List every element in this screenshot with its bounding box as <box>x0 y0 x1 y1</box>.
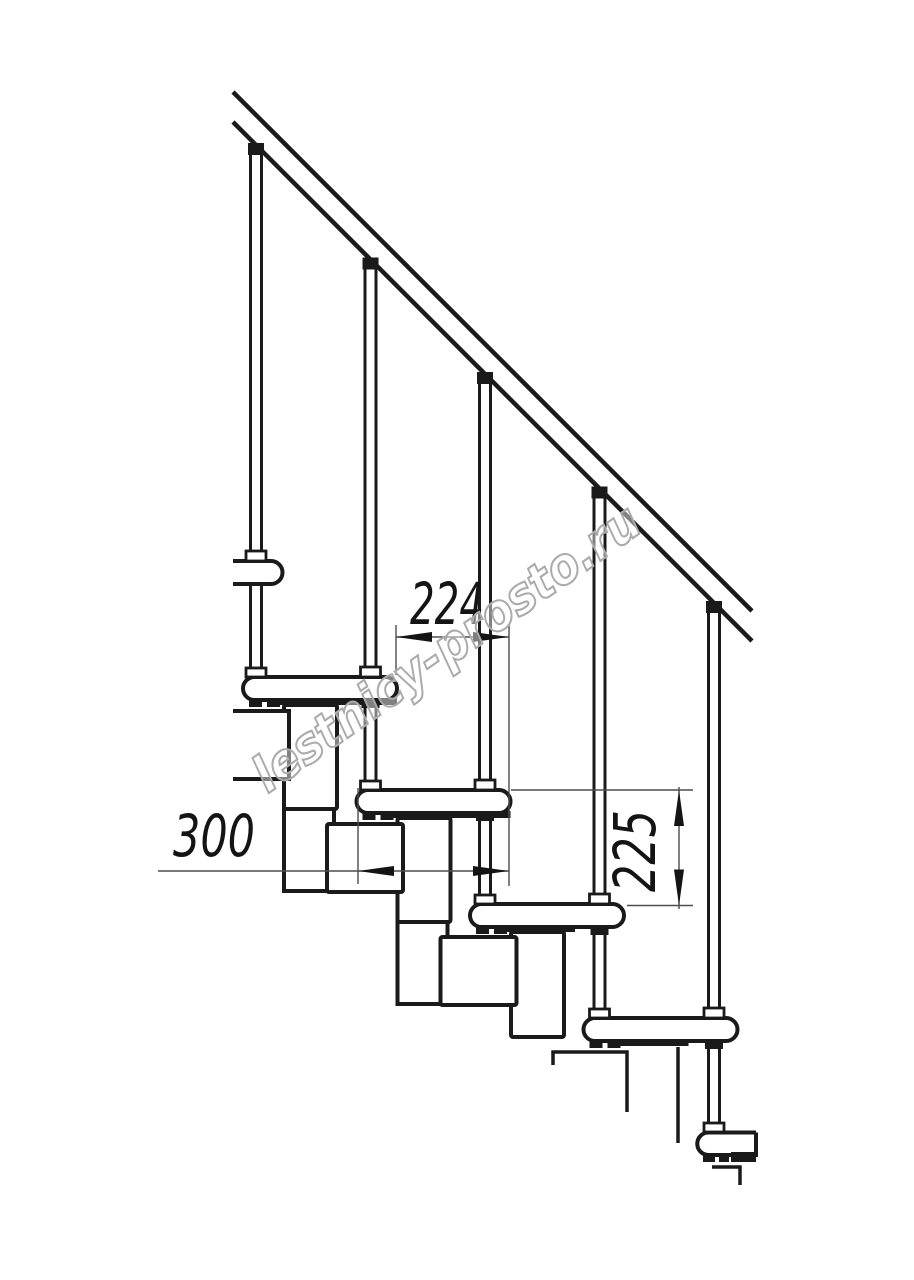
baluster-3-rail-connector <box>477 372 493 384</box>
dim-label-tread-depth: 300 <box>173 802 255 870</box>
tread-5-mount-strip <box>731 1152 756 1162</box>
tread-0-cut <box>233 561 283 584</box>
square-module-3-partial <box>553 1052 627 1112</box>
baluster-1-rail-connector <box>248 143 264 155</box>
tread-3-mount-strip <box>505 925 575 932</box>
handrail-top-edge <box>233 92 752 611</box>
tread-2 <box>357 790 511 813</box>
watermark-text: lestnicy-prosto.ru <box>241 492 651 803</box>
tread-4 <box>584 1018 738 1041</box>
riser-module-3 <box>511 932 564 1037</box>
baluster-5 <box>706 601 722 1132</box>
baluster-2-rail-connector <box>363 258 379 270</box>
tread-4-mount-strip <box>619 1039 689 1046</box>
square-module-2 <box>441 937 517 1005</box>
dimension-step-rise: 225 <box>511 787 693 909</box>
square-module-1 <box>327 824 403 892</box>
riser-module-2 <box>398 818 451 922</box>
baluster-1 <box>248 143 264 677</box>
baluster-4-rail-connector <box>592 487 608 499</box>
tread-5-cut <box>697 1133 756 1156</box>
square-module-4-partial <box>712 1167 740 1185</box>
technical-drawing-page: 224 300 225 lestnicy-prosto.ru <box>0 0 914 1280</box>
baluster-5-rail-connector <box>706 601 722 613</box>
tread-3 <box>470 904 624 927</box>
dim-label-step-rise: 225 <box>601 810 669 892</box>
dim-225-arrow-down <box>674 870 684 906</box>
handrail <box>233 92 752 641</box>
staircase-drawing: 224 300 225 lestnicy-prosto.ru <box>0 0 914 1280</box>
dim-225-arrow-up <box>674 790 684 826</box>
